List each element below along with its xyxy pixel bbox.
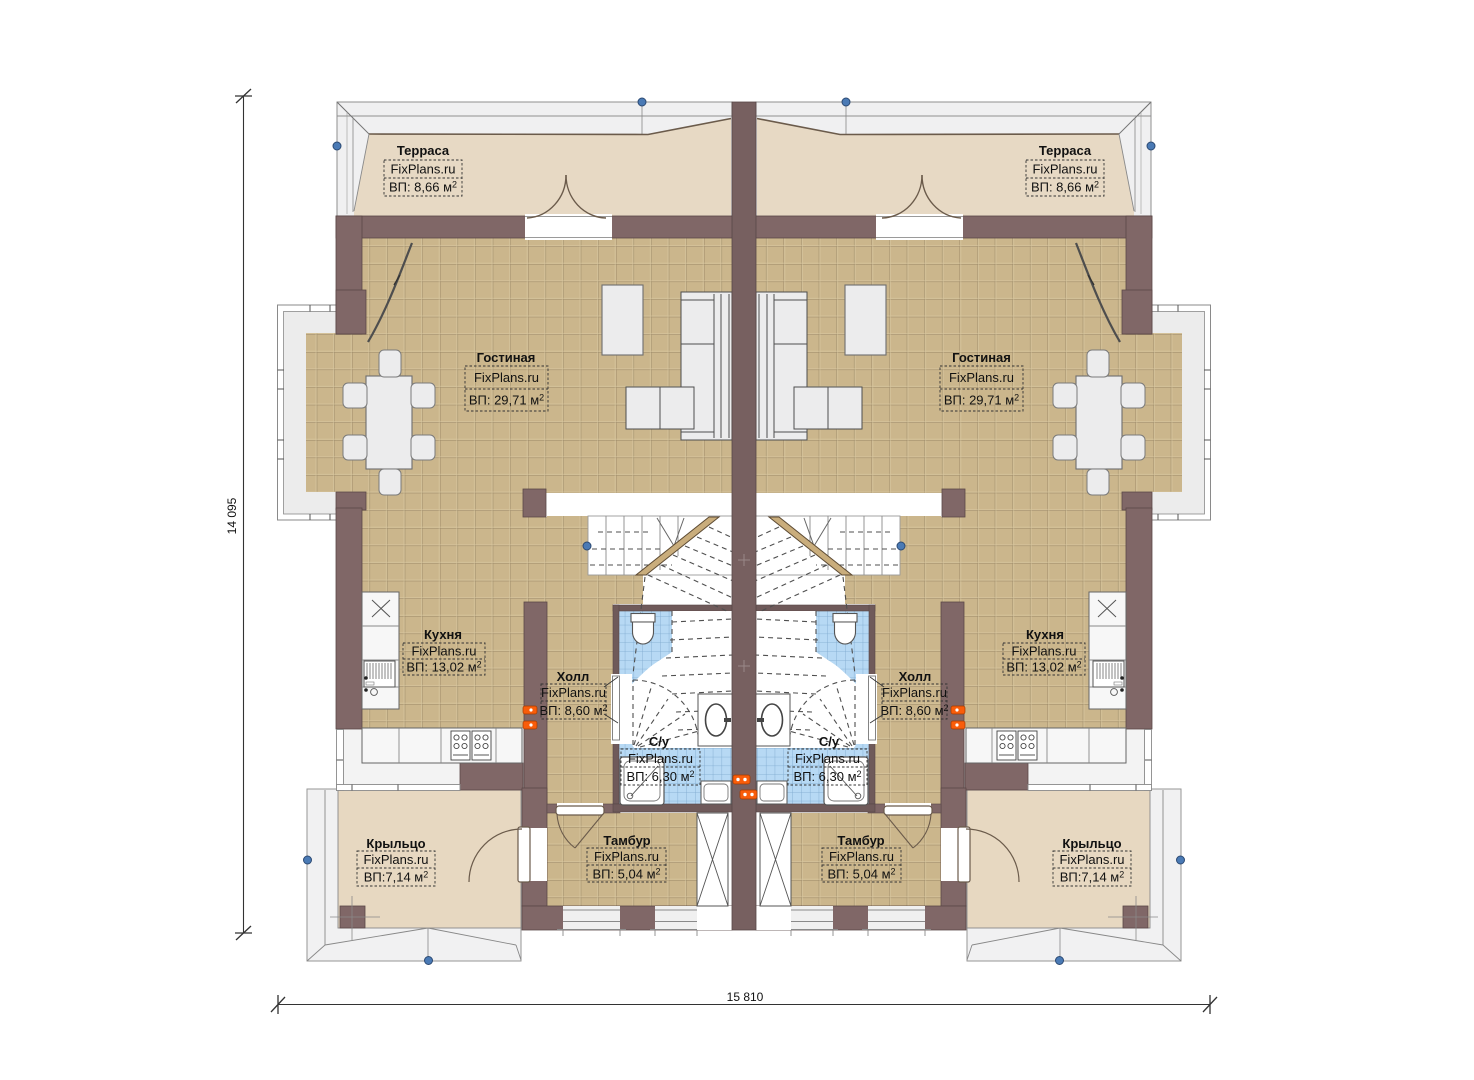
- svg-text:ВП: 8,60 м2: ВП: 8,60 м2: [539, 703, 607, 718]
- svg-text:С/у: С/у: [649, 734, 670, 749]
- svg-text:FixPlans.ru: FixPlans.ru: [628, 751, 693, 766]
- svg-text:FixPlans.ru: FixPlans.ru: [1032, 162, 1097, 177]
- svg-text:FixPlans.ru: FixPlans.ru: [411, 644, 476, 659]
- svg-text:Тамбур: Тамбур: [837, 833, 884, 848]
- svg-text:FixPlans.ru: FixPlans.ru: [1059, 852, 1124, 867]
- svg-text:ВП: 8,66 м2: ВП: 8,66 м2: [389, 180, 457, 195]
- svg-text:ВП: 8,60 м2: ВП: 8,60 м2: [880, 703, 948, 718]
- svg-text:FixPlans.ru: FixPlans.ru: [1011, 644, 1076, 659]
- svg-text:ВП: 6,30 м2: ВП: 6,30 м2: [793, 769, 861, 784]
- svg-text:FixPlans.ru: FixPlans.ru: [949, 370, 1014, 385]
- svg-text:FixPlans.ru: FixPlans.ru: [795, 751, 860, 766]
- svg-text:FixPlans.ru: FixPlans.ru: [829, 849, 894, 864]
- svg-text:Гостиная: Гостиная: [477, 350, 536, 365]
- svg-text:ВП: 13,02 м2: ВП: 13,02 м2: [406, 660, 481, 675]
- svg-text:ВП: 5,04 м2: ВП: 5,04 м2: [827, 867, 895, 882]
- svg-text:ВП: 6,30 м2: ВП: 6,30 м2: [626, 769, 694, 784]
- svg-text:Крыльцо: Крыльцо: [366, 836, 425, 851]
- svg-text:Кухня: Кухня: [1026, 627, 1064, 642]
- svg-text:С/у: С/у: [819, 734, 840, 749]
- svg-text:ВП: 29,71 м2: ВП: 29,71 м2: [469, 393, 544, 408]
- svg-text:FixPlans.ru: FixPlans.ru: [474, 370, 539, 385]
- svg-text:FixPlans.ru: FixPlans.ru: [390, 162, 455, 177]
- svg-text:FixPlans.ru: FixPlans.ru: [594, 849, 659, 864]
- svg-text:Терраса: Терраса: [397, 143, 450, 158]
- svg-text:FixPlans.ru: FixPlans.ru: [882, 685, 947, 700]
- svg-text:14 095: 14 095: [225, 497, 239, 534]
- svg-text:Кухня: Кухня: [424, 627, 462, 642]
- svg-text:FixPlans.ru: FixPlans.ru: [541, 685, 606, 700]
- svg-text:Холл: Холл: [899, 669, 932, 684]
- svg-text:Терраса: Терраса: [1039, 143, 1092, 158]
- svg-text:ВП: 5,04 м2: ВП: 5,04 м2: [592, 867, 660, 882]
- svg-text:ВП:7,14 м2: ВП:7,14 м2: [1060, 870, 1125, 885]
- svg-text:15 810: 15 810: [727, 990, 764, 1004]
- svg-text:Холл: Холл: [557, 669, 590, 684]
- svg-text:ВП: 13,02 м2: ВП: 13,02 м2: [1006, 660, 1081, 675]
- svg-text:Крыльцо: Крыльцо: [1062, 836, 1121, 851]
- svg-text:Тамбур: Тамбур: [603, 833, 650, 848]
- svg-text:ВП: 8,66 м2: ВП: 8,66 м2: [1031, 180, 1099, 195]
- svg-text:Гостиная: Гостиная: [952, 350, 1011, 365]
- svg-text:FixPlans.ru: FixPlans.ru: [363, 852, 428, 867]
- svg-text:ВП:7,14 м2: ВП:7,14 м2: [364, 870, 429, 885]
- svg-text:ВП: 29,71 м2: ВП: 29,71 м2: [944, 393, 1019, 408]
